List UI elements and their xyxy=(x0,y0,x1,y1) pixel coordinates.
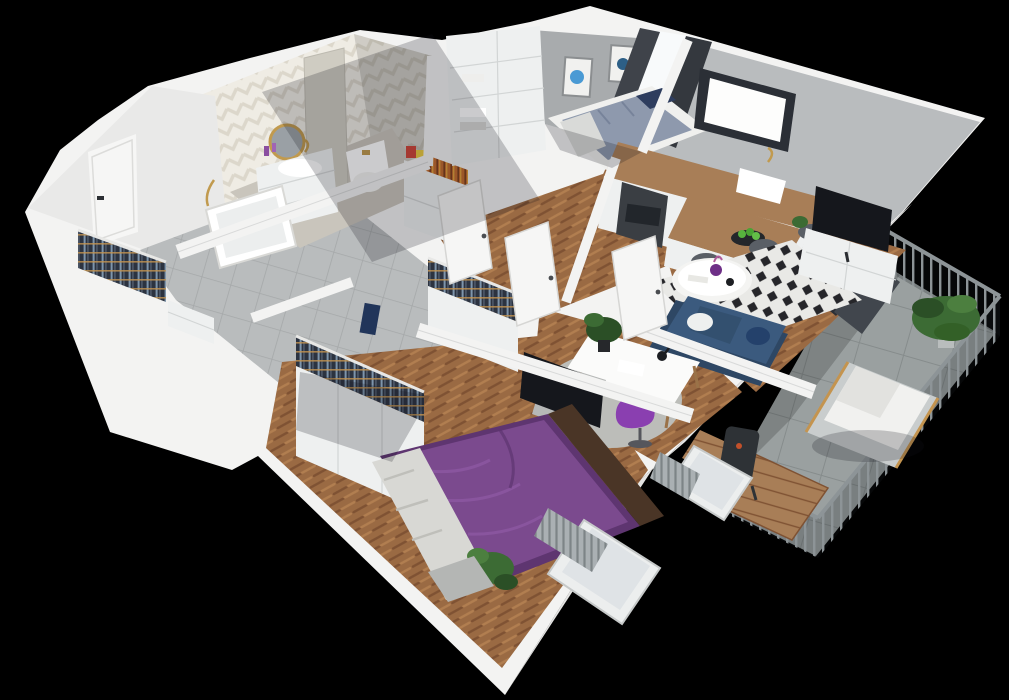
sofa-pillow-navy xyxy=(746,327,770,345)
shadow-balcony-chair xyxy=(812,430,924,462)
front-door xyxy=(88,134,138,246)
console-plant xyxy=(792,216,808,228)
front-door-handle xyxy=(97,196,104,200)
purple-vase xyxy=(710,264,722,276)
floorplan-render: 3D cutaway isometric render of a furnish… xyxy=(0,0,1009,700)
apartment-3d-svg: 3D cutaway isometric render of a furnish… xyxy=(0,0,1009,700)
sofa-pillow-white xyxy=(687,313,713,331)
